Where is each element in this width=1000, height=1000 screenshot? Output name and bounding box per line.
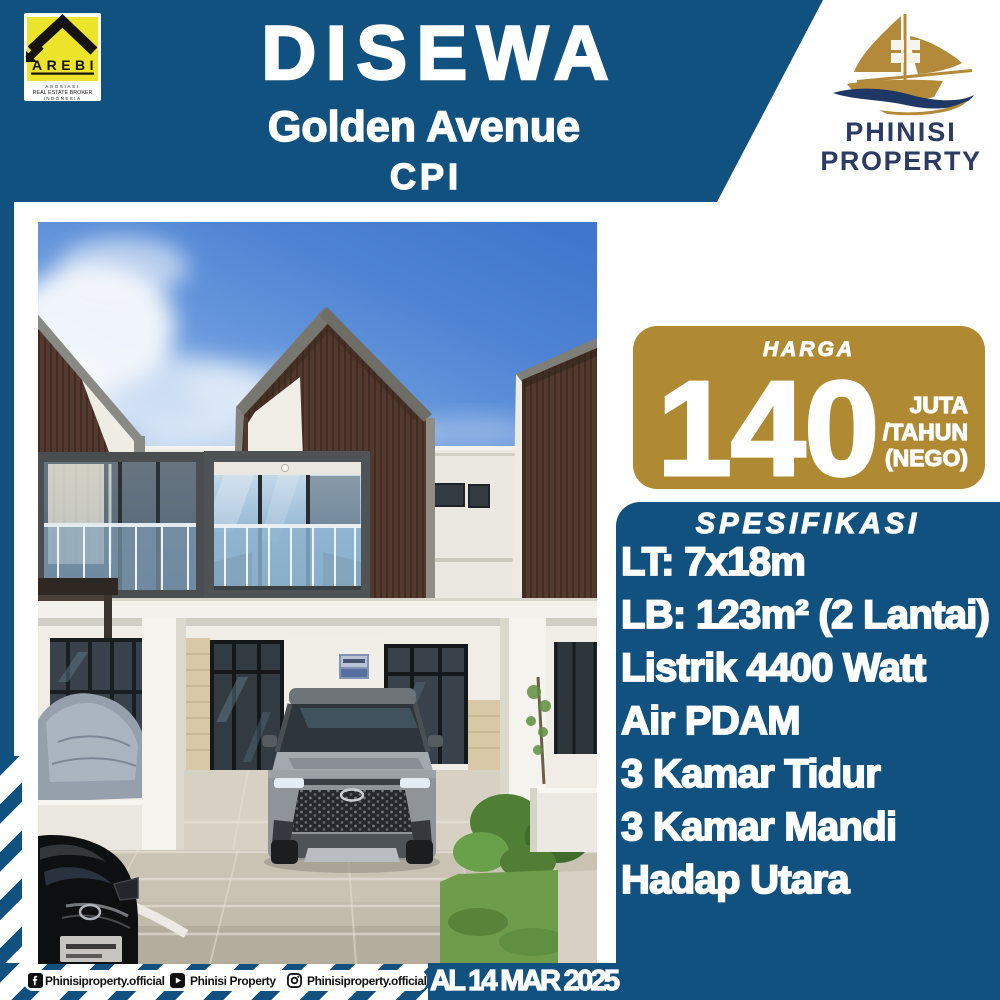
svg-text:INDONESIA: INDONESIA: [44, 96, 82, 101]
svg-text:PROPERTY: PROPERTY: [820, 146, 981, 176]
svg-text:ASOSIASI: ASOSIASI: [45, 84, 79, 89]
svg-text:AREBI: AREBI: [32, 57, 98, 73]
svg-text:PHINISI: PHINISI: [845, 117, 957, 147]
